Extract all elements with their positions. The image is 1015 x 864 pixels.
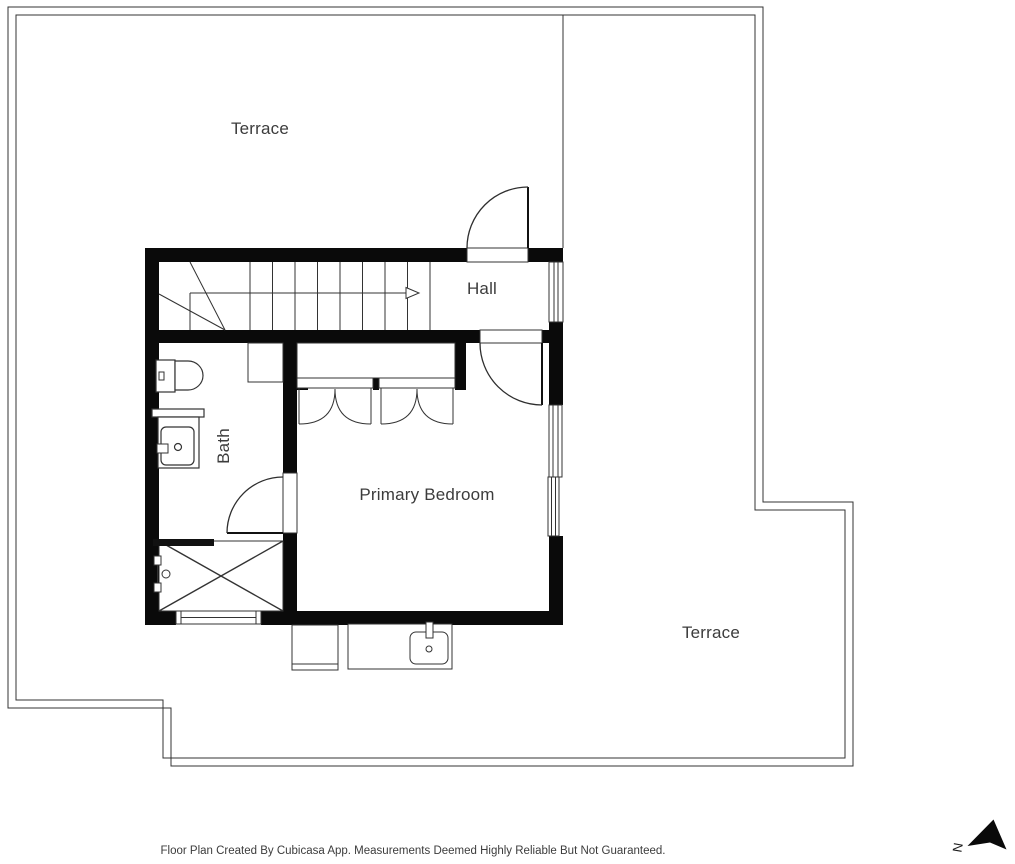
shower-icon <box>153 539 283 611</box>
outdoor-sink-icon <box>348 622 452 669</box>
bedroom-window-upper <box>549 405 562 477</box>
outdoor-unit-icon <box>292 625 338 670</box>
bath-door-opening <box>283 473 297 533</box>
toilet-icon <box>156 360 203 392</box>
room-label-primary-bedroom: Primary Bedroom <box>359 485 494 505</box>
room-label-terrace-lower: Terrace <box>682 623 740 643</box>
bath-door-swing-icon <box>227 477 283 533</box>
bath-window <box>176 611 261 624</box>
vanity-sink-icon <box>152 409 204 468</box>
bedroom-window-lower <box>548 477 559 536</box>
hall-window <box>549 262 563 322</box>
terrace-fixtures <box>292 622 452 670</box>
entrance-door-swing-icon <box>467 187 528 248</box>
bedroom-door-opening <box>480 330 542 343</box>
room-label-terrace-upper: Terrace <box>231 119 289 139</box>
bath-fixtures <box>152 343 283 611</box>
staircase-icon <box>159 262 430 330</box>
bath-cabinet-icon <box>248 343 283 382</box>
room-label-bath: Bath <box>214 428 234 464</box>
north-arrow-icon <box>968 820 1007 850</box>
room-label-hall: Hall <box>467 279 497 299</box>
disclaimer-text: Floor Plan Created By Cubicasa App. Meas… <box>0 845 826 857</box>
floor-plan-drawing <box>0 0 1015 864</box>
entrance-door-opening <box>467 248 528 262</box>
bedroom-door-swing-icon <box>480 343 542 405</box>
